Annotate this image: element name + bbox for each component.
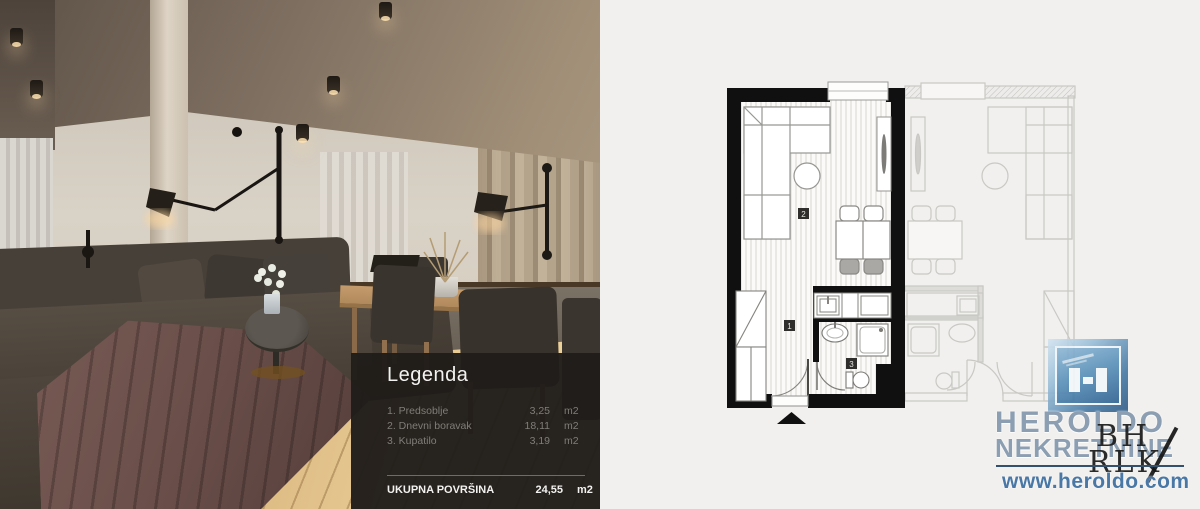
legend-row: 2. Dnevni boravak 18,11 m2 [387, 419, 586, 434]
logo-h-bar [1069, 368, 1080, 392]
total-label: UKUPNA POVRŠINA [387, 484, 527, 496]
heroldo-logo-icon [1048, 339, 1128, 412]
plan-kitchenette [814, 293, 891, 318]
plan-unit-highlighted: 1 2 3 [727, 82, 905, 424]
legend-total-row: UKUPNA POVRŠINA 24,55 m2 [387, 484, 599, 496]
legend-row: 3. Kupatilo 3,19 m2 [387, 434, 586, 449]
total-area: 24,55 [527, 484, 563, 496]
watermark-serif: BH RLK [1088, 424, 1162, 476]
vase [264, 294, 280, 314]
interior-photo: Legenda 1. Predsoblje 3,25 m2 2. Dnevni … [0, 0, 600, 509]
legend-divider [387, 475, 585, 476]
website-link[interactable]: www.heroldo.com [1002, 470, 1190, 494]
coffee-table-base [251, 366, 305, 379]
legend-title: Legenda [387, 364, 586, 387]
room-area: 3,25 [514, 404, 550, 419]
room-name: 3. Kupatilo [387, 434, 514, 449]
ceiling-spotlight [379, 2, 392, 19]
logo-inner-panel [1055, 346, 1121, 405]
logo-h-bar [1096, 368, 1107, 392]
legend-rows: 1. Predsoblje 3,25 m2 2. Dnevni boravak … [387, 404, 586, 449]
room-label-bath: 3 [849, 360, 854, 369]
plant-pot [432, 277, 458, 297]
plan-wardrobe [736, 291, 766, 401]
room-area: 18,11 [514, 419, 550, 434]
flower-bouquet [258, 268, 266, 276]
ceiling-spotlight [296, 124, 309, 141]
room-area: 3,19 [514, 434, 550, 449]
room-label-hall: 1 [787, 322, 792, 331]
plan-coffee-table [794, 163, 820, 189]
real-estate-listing-image: Legenda 1. Predsoblje 3,25 m2 2. Dnevni … [0, 0, 1200, 509]
room-label-living: 2 [801, 210, 806, 219]
ceiling-spotlight [10, 28, 23, 45]
room-unit: m2 [564, 404, 586, 419]
plan-entrance-arrow [777, 412, 806, 424]
total-unit: m2 [577, 484, 599, 496]
hall-ceiling [0, 0, 55, 150]
brand-divider [996, 465, 1184, 467]
ceiling-spotlight [30, 80, 43, 97]
ceiling-spotlight [327, 76, 340, 93]
room-name: 2. Dnevni boravak [387, 419, 514, 434]
room-unit: m2 [564, 419, 586, 434]
legend-panel: Legenda 1. Predsoblje 3,25 m2 2. Dnevni … [351, 353, 600, 509]
dining-chair [370, 264, 436, 345]
logo-h-bar [1083, 377, 1093, 384]
room-name: 1. Predsoblje [387, 404, 514, 419]
room-unit: m2 [564, 434, 586, 449]
legend-row: 1. Predsoblje 3,25 m2 [387, 404, 586, 419]
